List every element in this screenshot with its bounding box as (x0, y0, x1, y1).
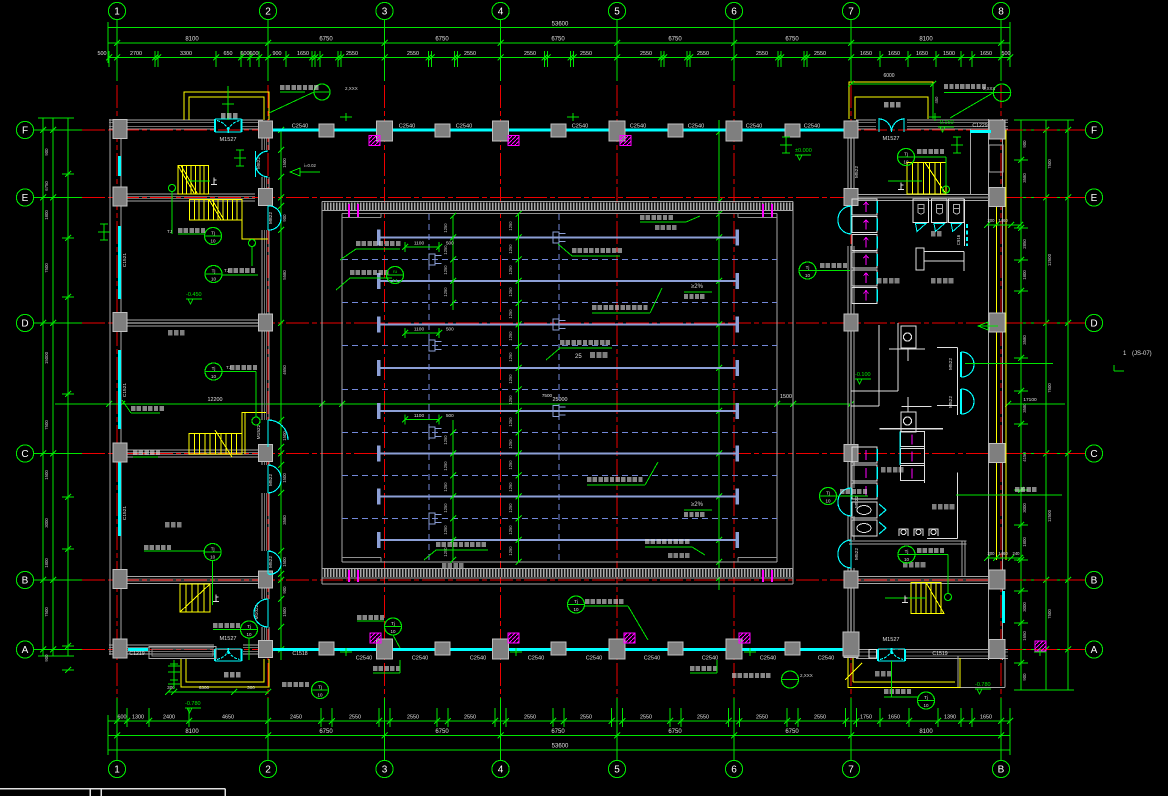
svg-text:12200: 12200 (208, 397, 223, 403)
svg-text:A: A (1091, 645, 1098, 656)
svg-text:Tj: Tj (574, 599, 578, 604)
svg-text:M1527: M1527 (219, 636, 236, 642)
svg-text:2550: 2550 (524, 51, 536, 57)
svg-text:12500: 12500 (1047, 253, 1052, 266)
svg-text:6: 6 (731, 7, 737, 18)
svg-text:900: 900 (282, 586, 287, 594)
svg-text:1100: 1100 (414, 413, 425, 419)
svg-text:1250: 1250 (508, 374, 513, 384)
svg-text:1500: 1500 (282, 557, 287, 567)
svg-text:6750: 6750 (668, 729, 682, 735)
svg-text:6750: 6750 (785, 729, 799, 735)
svg-text:1: 1 (114, 765, 120, 776)
svg-text:1250: 1250 (508, 482, 513, 492)
svg-text:M1527: M1527 (219, 137, 236, 143)
svg-text:A: A (22, 645, 29, 656)
svg-text:-0.150: -0.150 (938, 120, 954, 126)
svg-text:1800: 1800 (44, 210, 49, 220)
svg-text:TJ: TJ (226, 365, 231, 370)
svg-text:2850: 2850 (1022, 239, 1027, 249)
svg-text:C: C (21, 449, 28, 460)
svg-text:7500: 7500 (44, 607, 49, 617)
svg-text:2550: 2550 (814, 715, 826, 721)
svg-text:1250: 1250 (508, 546, 513, 556)
svg-text:3: 3 (382, 765, 388, 776)
svg-text:2,XXX: 2,XXX (983, 86, 995, 91)
svg-text:C2540: C2540 (760, 656, 776, 662)
svg-text:C2540: C2540 (804, 124, 820, 130)
svg-text:200: 200 (988, 218, 996, 223)
svg-text:≥2%: ≥2% (691, 502, 704, 508)
svg-text:C2540: C2540 (818, 656, 834, 662)
svg-text:TJ: TJ (167, 229, 172, 234)
svg-text:10: 10 (825, 499, 831, 504)
svg-text:3580: 3580 (1022, 173, 1027, 183)
svg-text:15000: 15000 (44, 351, 49, 364)
svg-text:2550: 2550 (580, 715, 592, 721)
svg-text:2550: 2550 (697, 715, 709, 721)
svg-text:TJ: TJ (224, 268, 229, 273)
svg-text:1250: 1250 (508, 221, 513, 231)
svg-text:≥2%: ≥2% (691, 284, 704, 290)
svg-text:10: 10 (923, 703, 929, 708)
svg-text:Tj: Tj (212, 269, 216, 274)
svg-text:7: 7 (848, 765, 854, 776)
svg-text:53600: 53600 (552, 22, 569, 28)
svg-text:1650: 1650 (916, 51, 928, 57)
svg-text:1460: 1460 (998, 551, 1008, 556)
svg-text:Tj: Tj (391, 621, 395, 626)
svg-text:2550: 2550 (580, 51, 592, 57)
svg-text:1650: 1650 (297, 51, 309, 57)
svg-text:B: B (22, 576, 29, 587)
svg-text:900: 900 (44, 654, 49, 662)
svg-text:1250: 1250 (443, 525, 448, 535)
svg-text:E: E (22, 193, 29, 204)
svg-text:2,XXX: 2,XXX (345, 86, 358, 91)
svg-text:1250: 1250 (443, 503, 448, 513)
svg-text:6000: 6000 (883, 73, 894, 79)
svg-text:25000: 25000 (553, 397, 568, 403)
svg-text:1500: 1500 (282, 607, 287, 617)
svg-text:900: 900 (1022, 673, 1027, 681)
svg-text:1250: 1250 (508, 265, 513, 275)
svg-text:(JS-07): (JS-07) (1132, 351, 1152, 357)
svg-text:4650: 4650 (282, 365, 287, 375)
svg-text:8100: 8100 (185, 729, 199, 735)
svg-text:6750: 6750 (551, 37, 565, 43)
svg-text:10: 10 (390, 629, 396, 634)
svg-text:B: B (1091, 576, 1098, 587)
svg-text:5: 5 (614, 7, 620, 18)
svg-text:C1519: C1519 (932, 651, 947, 657)
svg-text:6750: 6750 (44, 181, 49, 191)
svg-text:Tj: Tj (904, 152, 908, 157)
svg-text:Tj: Tj (211, 231, 215, 236)
svg-text:C1521: C1521 (122, 253, 128, 267)
svg-text:M1527: M1527 (882, 136, 899, 142)
svg-text:10: 10 (573, 607, 579, 612)
svg-text:900: 900 (1022, 140, 1027, 148)
svg-text:1650: 1650 (888, 715, 900, 721)
svg-text:M1527: M1527 (882, 637, 899, 643)
svg-text:200: 200 (988, 551, 996, 556)
svg-text:6750: 6750 (668, 37, 682, 43)
svg-text:M1522: M1522 (256, 424, 262, 439)
svg-text:2550: 2550 (756, 715, 768, 721)
svg-text:650: 650 (224, 51, 233, 57)
svg-text:2550: 2550 (407, 715, 419, 721)
svg-text:Tj: Tj (826, 491, 830, 496)
svg-text:C2540: C2540 (702, 656, 718, 662)
svg-text:5580: 5580 (282, 270, 287, 280)
svg-text:Tj: Tj (905, 549, 909, 554)
svg-text:450: 450 (934, 96, 939, 104)
svg-text:1250: 1250 (508, 503, 513, 513)
svg-text:1250: 1250 (508, 439, 513, 449)
svg-text:-0.780: -0.780 (185, 701, 201, 707)
svg-text:7500: 7500 (44, 420, 49, 430)
svg-text:1390: 1390 (944, 715, 956, 721)
svg-text:6750: 6750 (551, 729, 565, 735)
svg-text:6: 6 (731, 765, 737, 776)
svg-text:10: 10 (246, 632, 252, 637)
svg-text:4: 4 (498, 765, 504, 776)
svg-text:1: 1 (114, 7, 120, 18)
svg-text:2: 2 (265, 7, 271, 18)
svg-text:C2540: C2540 (470, 656, 486, 662)
svg-text:1800: 1800 (1022, 537, 1027, 547)
svg-text:500: 500 (446, 241, 454, 246)
svg-text:6750: 6750 (319, 729, 333, 735)
svg-text:6750: 6750 (319, 37, 333, 43)
svg-text:M522: M522 (854, 548, 860, 560)
svg-text:C1518: C1518 (292, 651, 307, 657)
svg-text:1100: 1100 (414, 241, 425, 247)
svg-text:2550: 2550 (697, 51, 709, 57)
svg-text:Tj: Tj (318, 685, 322, 690)
svg-text:Tj: Tj (212, 366, 216, 371)
svg-text:F: F (1091, 126, 1097, 137)
svg-text:Tj: Tj (924, 695, 928, 700)
svg-text:C2540: C2540 (630, 124, 646, 130)
svg-text:2550: 2550 (524, 715, 536, 721)
svg-text:1800: 1800 (1022, 270, 1027, 280)
svg-text:2550: 2550 (407, 51, 419, 57)
svg-text:M822: M822 (268, 212, 274, 224)
svg-text:C916: C916 (956, 234, 961, 245)
svg-text:D: D (1090, 319, 1097, 330)
svg-text:C2540: C2540 (586, 656, 602, 662)
svg-text:2550: 2550 (464, 715, 476, 721)
svg-text:7500: 7500 (1047, 383, 1052, 393)
svg-text:C1229: C1229 (972, 123, 987, 129)
svg-text:1250: 1250 (443, 223, 448, 233)
svg-text:6750: 6750 (435, 729, 449, 735)
svg-text:1460: 1460 (998, 218, 1008, 223)
svg-text:3000: 3000 (44, 518, 49, 528)
svg-text:Tj: Tj (806, 265, 810, 270)
svg-text:7500: 7500 (1047, 609, 1052, 619)
svg-text:-0.100: -0.100 (855, 372, 871, 378)
svg-text:1750: 1750 (860, 715, 872, 721)
svg-text:1650: 1650 (980, 715, 992, 721)
svg-text:1250: 1250 (508, 287, 513, 297)
svg-text:C2540: C2540 (399, 124, 415, 130)
svg-text:1800: 1800 (44, 558, 49, 568)
svg-text:C1521: C1521 (122, 506, 128, 520)
svg-text:1250: 1250 (508, 352, 513, 362)
svg-text:C: C (1090, 449, 1097, 460)
svg-text:7500: 7500 (542, 393, 553, 398)
svg-text:1250: 1250 (508, 417, 513, 427)
svg-text:10: 10 (805, 273, 811, 278)
svg-text:M522: M522 (268, 474, 274, 486)
svg-text:1500: 1500 (44, 470, 49, 480)
svg-text:2450: 2450 (290, 715, 302, 721)
svg-text:5: 5 (614, 765, 620, 776)
svg-text:900: 900 (282, 214, 287, 222)
svg-text:Tj: Tj (211, 547, 215, 552)
svg-text:1250: 1250 (443, 245, 448, 255)
svg-text:10: 10 (211, 277, 217, 282)
svg-text:1250: 1250 (508, 244, 513, 254)
svg-text:3580: 3580 (1022, 335, 1027, 345)
svg-text:600: 600 (118, 715, 127, 721)
svg-text:1250: 1250 (508, 331, 513, 341)
svg-text:M522: M522 (268, 556, 274, 568)
svg-text:1250: 1250 (443, 482, 448, 492)
svg-text:ru: ru (393, 269, 397, 274)
svg-text:500: 500 (446, 413, 454, 418)
svg-text:1250: 1250 (443, 461, 448, 471)
svg-text:10: 10 (210, 555, 216, 560)
svg-text:1500: 1500 (943, 51, 955, 57)
svg-text:3: 3 (382, 7, 388, 18)
svg-text:600: 600 (241, 51, 250, 57)
svg-text:1250: 1250 (508, 309, 513, 319)
svg-text:3000: 3000 (1022, 503, 1027, 513)
svg-text:C2540: C2540 (456, 124, 472, 130)
svg-text:C2540: C2540 (688, 124, 704, 130)
svg-text:2700: 2700 (130, 51, 142, 57)
svg-text:1650: 1650 (980, 51, 992, 57)
svg-text:6750: 6750 (785, 37, 799, 43)
svg-text:6750: 6750 (435, 37, 449, 43)
svg-text:3300: 3300 (180, 51, 192, 57)
svg-text:500: 500 (446, 327, 454, 332)
svg-text:2550: 2550 (464, 51, 476, 57)
svg-text:C2540: C2540 (528, 656, 544, 662)
svg-text:C2540: C2540 (746, 124, 762, 130)
svg-text:±0.000: ±0.000 (795, 148, 812, 154)
svg-text:2550: 2550 (756, 51, 768, 57)
svg-text:7: 7 (848, 7, 854, 18)
svg-text:1250: 1250 (443, 287, 448, 297)
svg-text:1250: 1250 (508, 460, 513, 470)
svg-text:6300: 6300 (199, 685, 210, 690)
svg-text:25: 25 (575, 354, 582, 360)
svg-text:8100: 8100 (919, 729, 933, 735)
svg-text:900: 900 (44, 148, 49, 156)
svg-text:10: 10 (903, 160, 909, 165)
svg-text:3580: 3580 (282, 515, 287, 525)
svg-text:i=0.02: i=0.02 (304, 163, 316, 168)
svg-text:Tj: Tj (247, 624, 251, 629)
svg-text:1250: 1250 (443, 265, 448, 275)
svg-text:1500: 1500 (780, 394, 792, 400)
svg-text:C1219: C1219 (129, 651, 144, 657)
svg-text:3000: 3000 (1022, 602, 1027, 612)
svg-text:1250: 1250 (443, 435, 448, 445)
svg-text:2550: 2550 (346, 51, 358, 57)
svg-text:600: 600 (250, 51, 259, 57)
svg-text:C2540: C2540 (412, 656, 428, 662)
svg-text:10: 10 (211, 374, 217, 379)
svg-text:12500: 12500 (1047, 509, 1052, 522)
svg-text:10: 10 (904, 557, 910, 562)
svg-text:8100: 8100 (185, 37, 199, 43)
svg-text:53600: 53600 (552, 744, 569, 750)
svg-text:C1521: C1521 (122, 383, 128, 397)
svg-text:240: 240 (1013, 551, 1021, 556)
svg-text:C2540: C2540 (356, 656, 372, 662)
svg-text:2: 2 (265, 765, 271, 776)
svg-text:M522: M522 (948, 358, 954, 370)
svg-text:1500: 1500 (282, 158, 287, 168)
svg-text:8: 8 (998, 7, 1004, 18)
svg-text:500: 500 (98, 51, 107, 57)
svg-text:1500: 1500 (282, 473, 287, 483)
svg-text:-0.450: -0.450 (186, 292, 202, 298)
svg-text:1100: 1100 (414, 327, 425, 333)
svg-text:2550: 2550 (349, 715, 361, 721)
svg-text:C2540: C2540 (572, 124, 588, 130)
svg-text:2550: 2550 (814, 51, 826, 57)
svg-text:-0.780: -0.780 (975, 682, 991, 688)
svg-text:17100: 17100 (1023, 397, 1037, 403)
svg-text:2550: 2550 (640, 715, 652, 721)
svg-text:1650: 1650 (888, 51, 900, 57)
svg-text:14: 14 (392, 278, 398, 283)
svg-text:2,XXX: 2,XXX (800, 673, 813, 678)
svg-text:2550: 2550 (640, 51, 652, 57)
svg-text:7500: 7500 (44, 263, 49, 273)
svg-text:1300: 1300 (132, 715, 144, 721)
svg-text:C2540: C2540 (644, 656, 660, 662)
svg-text:900: 900 (273, 51, 282, 57)
svg-text:10: 10 (210, 239, 216, 244)
svg-text:1250: 1250 (443, 547, 448, 557)
svg-text:4650: 4650 (222, 715, 234, 721)
svg-text:1650: 1650 (860, 51, 872, 57)
svg-text:8100: 8100 (919, 37, 933, 43)
svg-text:2400: 2400 (163, 715, 175, 721)
svg-text:M522: M522 (948, 396, 954, 408)
svg-text:500: 500 (1002, 51, 1011, 57)
svg-text:E: E (1091, 193, 1098, 204)
svg-text:M522: M522 (854, 166, 860, 178)
svg-text:4: 4 (498, 7, 504, 18)
svg-text:C2540: C2540 (292, 124, 308, 130)
svg-text:1250: 1250 (508, 525, 513, 535)
svg-text:7500: 7500 (1047, 159, 1052, 169)
svg-text:D: D (21, 319, 28, 330)
svg-text:F: F (22, 126, 28, 137)
svg-text:1250: 1250 (508, 395, 513, 405)
svg-text:300: 300 (247, 685, 255, 690)
svg-text:10: 10 (317, 693, 323, 698)
svg-text:B: B (998, 765, 1005, 776)
svg-text:1650: 1650 (1022, 631, 1027, 641)
